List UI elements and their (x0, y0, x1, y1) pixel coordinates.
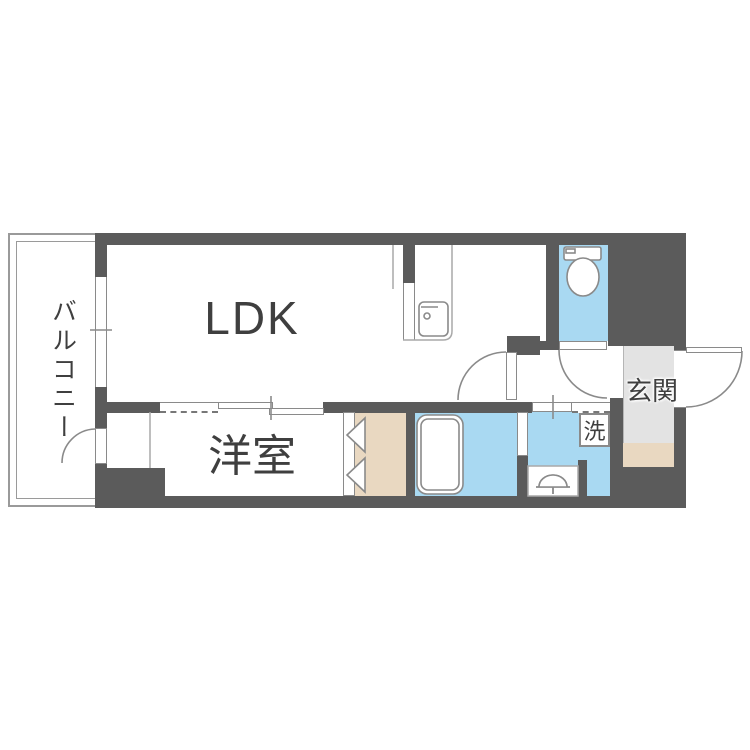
wall-entrance-bottom (623, 467, 686, 508)
toilet-door-leaf (559, 341, 607, 350)
floor-plan: 洗 (0, 0, 750, 750)
washroom-door-bar (532, 402, 572, 412)
washroom-floor-corner (587, 460, 610, 496)
kitchen-counter-opening (403, 283, 415, 340)
wall-closet-bath (406, 412, 415, 496)
washing-machine-space: 洗 (579, 413, 610, 447)
wall-bath-wash (517, 456, 528, 496)
entrance-door-arc-icon (686, 351, 742, 407)
washbasin-counter-outline (528, 466, 578, 496)
wall-top (96, 233, 608, 245)
wall-corner-block (105, 468, 165, 496)
laundry-dashed-bar (572, 402, 610, 413)
wall-hall-bar (538, 341, 559, 350)
washbasin-icon (539, 475, 567, 487)
entrance-door-leaf (686, 347, 742, 353)
toilet-room-floor (559, 245, 608, 341)
bathroom-floor (415, 412, 517, 496)
hall-door-leaf (506, 352, 517, 400)
balcony-door-leaf (95, 428, 107, 464)
kitchen-drain-icon (424, 313, 430, 319)
wall-toilet-left (546, 233, 559, 341)
wall-kitchen-partition (403, 245, 415, 283)
balcony-room-label: バルコニー (46, 290, 79, 450)
wall-bottom (95, 496, 686, 508)
window-balcony-ldk (95, 277, 107, 387)
closet-floor (355, 412, 406, 496)
wall-left-upper (95, 233, 107, 277)
laundry-label: 洗 (583, 414, 605, 446)
toilet-door-arc-icon (559, 350, 607, 398)
bedroom-open-closet-top (160, 402, 218, 413)
bathroom-door (517, 412, 528, 456)
ldk-room-label: LDK (190, 293, 314, 343)
wall-divider-left (106, 402, 160, 413)
kitchen-sink-icon (419, 302, 448, 336)
washbasin-bowl-icon (539, 475, 567, 487)
entrance-step (623, 443, 674, 467)
wall-wash-entrance (610, 398, 623, 497)
wall-wash-stub (578, 460, 587, 496)
sliding-door-panel-2 (269, 408, 324, 415)
closet-folding-strip (343, 412, 355, 496)
entrance-room-label: 玄関 (620, 374, 684, 404)
sliding-door-panel-1 (218, 402, 273, 409)
hall-door-arc-icon (458, 352, 506, 400)
bedroom-room-label: 洋室 (190, 427, 314, 477)
wall-block-top-right (608, 233, 686, 346)
